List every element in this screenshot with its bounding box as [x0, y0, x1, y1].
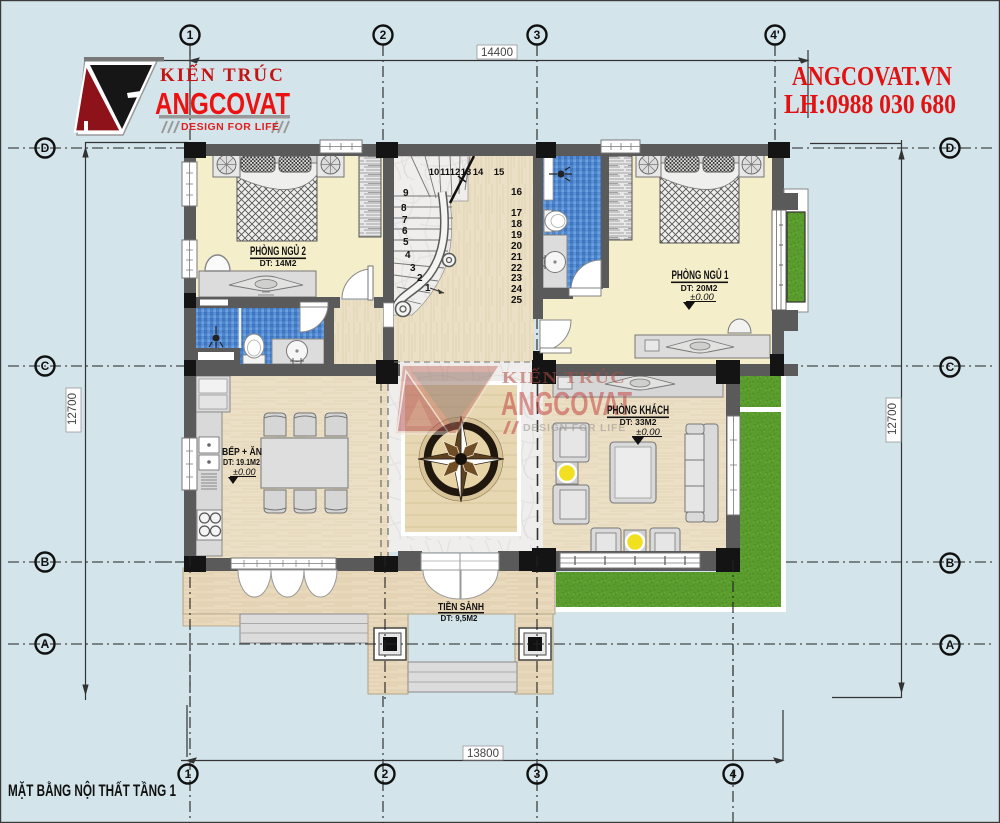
- svg-text:9: 9: [403, 188, 409, 199]
- svg-text:10: 10: [429, 167, 440, 178]
- svg-text:6: 6: [402, 226, 408, 237]
- svg-text:4': 4': [770, 28, 780, 42]
- svg-text:2: 2: [417, 273, 423, 284]
- svg-text:2: 2: [382, 767, 389, 781]
- svg-text:25: 25: [511, 295, 523, 306]
- svg-text:DT: 9,5M2: DT: 9,5M2: [441, 614, 478, 623]
- svg-text:DT: 19.1M2: DT: 19.1M2: [223, 458, 260, 467]
- svg-text:LH:0988 030 680: LH:0988 030 680: [784, 89, 956, 119]
- svg-text:PHÒNG NGỦ 2: PHÒNG NGỦ 2: [250, 245, 306, 258]
- svg-text:MẶT BẰNG NỘI THẤT TẦNG 1: MẶT BẰNG NỘI THẤT TẦNG 1: [8, 781, 176, 800]
- svg-text:B: B: [41, 555, 50, 569]
- svg-text:23: 23: [511, 273, 523, 284]
- svg-text:BẾP + ĂN: BẾP + ĂN: [222, 445, 262, 458]
- svg-text:14400: 14400: [481, 47, 513, 59]
- svg-text:19: 19: [511, 230, 523, 241]
- svg-text:13800: 13800: [467, 748, 499, 760]
- svg-text:17: 17: [511, 208, 523, 219]
- svg-text:12: 12: [450, 167, 461, 178]
- svg-text:12700: 12700: [67, 393, 79, 425]
- svg-text:D: D: [946, 141, 955, 155]
- svg-text:16: 16: [511, 187, 523, 198]
- svg-text:13: 13: [461, 167, 472, 178]
- svg-text:ANGCOVAT.VN: ANGCOVAT.VN: [792, 61, 952, 91]
- svg-text:8: 8: [401, 203, 407, 214]
- svg-text:4: 4: [730, 767, 737, 781]
- svg-text:3: 3: [534, 28, 541, 42]
- svg-text:15: 15: [494, 167, 505, 178]
- svg-text:14: 14: [473, 167, 484, 178]
- svg-text:B: B: [946, 556, 955, 570]
- svg-text:DESIGN FOR LIFE: DESIGN FOR LIFE: [181, 121, 280, 133]
- svg-text:DESIGN FOR LIFE: DESIGN FOR LIFE: [523, 422, 626, 434]
- svg-text:20: 20: [511, 241, 523, 252]
- svg-text:4: 4: [405, 250, 411, 261]
- svg-text:DT: 14M2: DT: 14M2: [260, 258, 297, 268]
- svg-text:TIỀN SẢNH: TIỀN SẢNH: [438, 600, 484, 613]
- svg-text:PHÒNG KHÁCH: PHÒNG KHÁCH: [607, 404, 669, 417]
- svg-text:1: 1: [185, 767, 192, 781]
- svg-text:18: 18: [511, 219, 523, 230]
- svg-text:D: D: [41, 141, 50, 155]
- svg-text:3: 3: [410, 263, 416, 274]
- svg-text:21: 21: [511, 252, 523, 263]
- svg-text:KIẾN TRÚC: KIẾN TRÚC: [160, 64, 285, 86]
- svg-text:DT: 33M2: DT: 33M2: [620, 417, 657, 427]
- svg-text:5: 5: [403, 237, 409, 248]
- svg-text:12700: 12700: [887, 403, 899, 435]
- svg-text:C: C: [946, 360, 955, 374]
- svg-text:1: 1: [187, 28, 194, 42]
- svg-text:7: 7: [402, 215, 408, 226]
- svg-text:2: 2: [380, 28, 387, 42]
- svg-text:±0.00: ±0.00: [233, 467, 255, 477]
- svg-text:A: A: [946, 638, 955, 652]
- svg-text:PHÒNG NGỦ 1: PHÒNG NGỦ 1: [672, 269, 729, 282]
- svg-text:3: 3: [534, 767, 541, 781]
- svg-text:C: C: [41, 359, 50, 373]
- svg-text:24: 24: [511, 284, 523, 295]
